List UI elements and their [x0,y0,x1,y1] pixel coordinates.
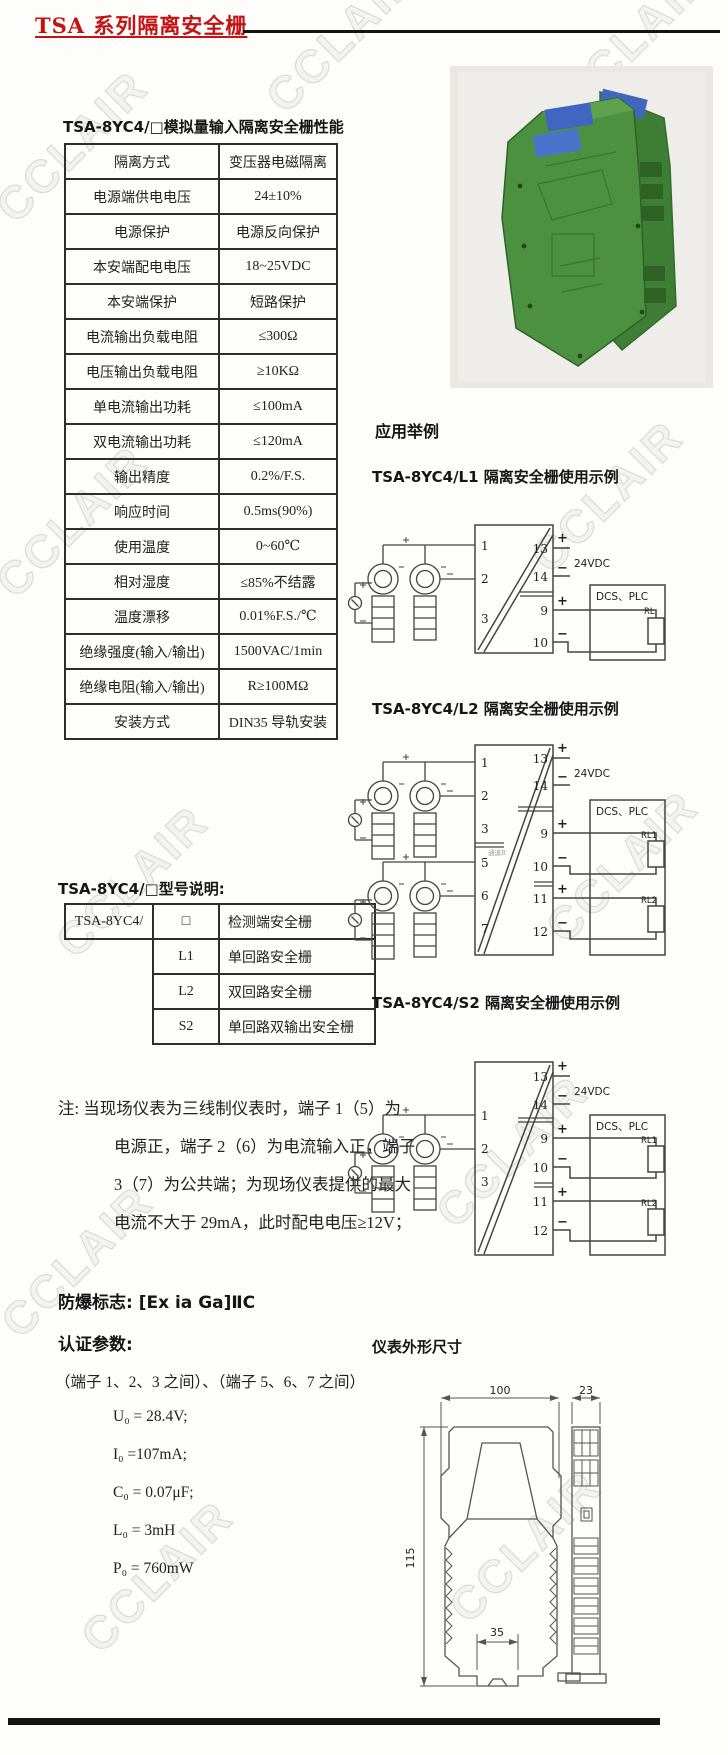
plus-sign: + [557,882,568,897]
terminal-number: 14 [533,779,549,793]
perf-value: ≥10KΩ [219,354,337,389]
terminal-number: 6 [481,889,489,903]
product-photo [450,66,713,388]
dim-width-label: 100 [490,1384,511,1397]
terminal-number: 12 [533,925,548,939]
cert-param: I₀ =107mA; [113,1440,194,1478]
side-view-base [566,1674,606,1683]
load-resistor [648,1209,664,1235]
terminal-number: 13 [533,1070,548,1084]
application-heading: 应用举例 [375,418,439,442]
s2-title: TSA-8YC4/S2 隔离安全栅使用示例 [372,992,620,1013]
load-label: RL [644,607,655,617]
note-line: 3（7）为公共端；为现场仪表提供的最大 [58,1166,370,1204]
terminal-number: 10 [533,860,548,874]
terminal-number: 13 [533,542,548,556]
perf-value: 18~25VDC [219,249,337,284]
minus-sign: − [557,1215,568,1230]
cert-param: C₀ = 0.07μF; [113,1478,194,1516]
title-rule [243,30,720,33]
plus-sign: + [557,1185,568,1200]
minus-sign: − [557,851,568,866]
note-line: 注: 当现场仪表为三线制仪表时，端子 1（5）为 [58,1090,370,1128]
perf-label: 电源保护 [65,214,219,249]
model-prefix-empty [65,1009,153,1044]
table-row: 电流输出负载电阻≤300Ω [65,319,337,354]
cert-param: P₀ = 760mW [113,1554,194,1592]
terminal-number: 11 [533,892,548,906]
front-view-outline [441,1427,561,1686]
supply-label: 24VDC [574,1086,610,1098]
minus-sign: − [557,770,568,785]
page: { "page": { "title": "TSA 系列隔离安全栅", "wat… [0,0,728,1755]
right-serration [550,1548,556,1644]
table-row: 双电流输出功耗≤120mA [65,424,337,459]
dimensions-heading: 仪表外形尺寸 [372,1336,462,1357]
note-line: 电流不大于 29mA，此时配电电压≥12V； [58,1204,370,1242]
table-row: 电源保护电源反向保护 [65,214,337,249]
perf-label: 响应时间 [65,494,219,529]
perf-label: 本安端配电电压 [65,249,219,284]
perf-value: ≤85%不结露 [219,564,337,599]
perf-label: 电流输出负载电阻 [65,319,219,354]
cert-terminals-line: （端子 1、2、3 之间）、（端子 5、6、7 之间） [55,1370,365,1392]
minus-sign: − [557,916,568,931]
terminal-number: 3 [481,1175,489,1189]
table-row: 本安端保护短路保护 [65,284,337,319]
note-block: 注: 当现场仪表为三线制仪表时，端子 1（5）为电源正，端子 2（6）为电流输入… [58,1090,370,1242]
terminal-number: 12 [533,1224,548,1238]
model-prefix-empty [65,939,153,974]
model-desc: 双回路安全栅 [219,974,375,1009]
s2-diagram: 1 2 3 13 14 9 10 11 12 + − + − + − 24VDC… [338,1030,720,1265]
perf-value: 24±10% [219,179,337,214]
side-view-terminals [574,1430,598,1654]
l2-title: TSA-8YC4/L2 隔离安全栅使用示例 [372,698,619,719]
table-row: L1单回路安全栅 [65,939,375,974]
perf-label: 绝缘电阻(输入/输出) [65,669,219,704]
terminal-number: 3 [481,822,489,836]
ex-mark: 防爆标志: [Ex ia Ga]ⅡC [58,1288,255,1313]
load-resistor [648,906,664,932]
dimension-drawing: 100 23 115 35 [350,1368,720,1698]
model-code: S2 [153,1009,219,1044]
perf-value: 0~60℃ [219,529,337,564]
terminal-number: 5 [481,856,489,870]
cert-param: U₀ = 28.4V; [113,1402,194,1440]
plus-sign: + [557,594,568,609]
terminal-number: 11 [533,1195,548,1209]
perf-label: 温度漂移 [65,599,219,634]
cert-param-block: U₀ = 28.4V;I₀ =107mA;C₀ = 0.07μF;L₀ = 3m… [113,1402,194,1592]
table-row: TSA-8YC4/□检测端安全栅 [65,904,375,939]
table-row: 绝缘强度(输入/输出)1500VAC/1min [65,634,337,669]
table-row: 本安端配电电压18~25VDC [65,249,337,284]
perf-heading: TSA-8YC4/□模拟量输入隔离安全栅性能 [63,116,344,137]
dim-foot-label: 35 [490,1626,504,1639]
supply-label: 24VDC [574,768,610,780]
terminal-number: 14 [533,570,549,584]
load-label: RL1 [641,831,657,841]
product-photo-illustration [450,66,713,388]
minus-sign: − [557,627,568,642]
terminal-number: 2 [481,572,489,586]
perf-label: 输出精度 [65,459,219,494]
terminal-number: 10 [533,636,548,650]
l1-diagram: 1 2 3 13 14 9 10 + − + − 24VDC DCS、PLC R… [338,500,720,668]
load-label: RL2 [641,1199,657,1209]
minus-sign: − [557,1089,568,1104]
model-code: □ [153,904,219,939]
perf-value: 电源反向保护 [219,214,337,249]
terminal-number: 1 [481,1109,489,1123]
perf-label: 电源端供电电压 [65,179,219,214]
perf-label: 绝缘强度(输入/输出) [65,634,219,669]
perf-label: 电压输出负载电阻 [65,354,219,389]
table-row: 安装方式DIN35 导轨安装 [65,704,337,739]
model-prefix: TSA-8YC4/ [65,904,153,939]
model-code: L1 [153,939,219,974]
table-row: 相对湿度≤85%不结露 [65,564,337,599]
table-row: 输出精度0.2%/F.S. [65,459,337,494]
minus-sign: − [557,1152,568,1167]
model-heading: TSA-8YC4/□型号说明: [58,878,225,899]
dcs-label: DCS、PLC [596,1121,648,1133]
side-view-outline [572,1427,600,1674]
supply-label: 24VDC [574,558,610,570]
terminal-number: 10 [533,1161,548,1175]
perf-label: 双电流输出功耗 [65,424,219,459]
perf-value: 短路保护 [219,284,337,319]
table-row: 响应时间0.5ms(90%) [65,494,337,529]
terminal-number: 1 [481,756,489,770]
watermark: CCLAIR [255,0,429,123]
perf-label: 本安端保护 [65,284,219,319]
footer-rule [8,1718,660,1725]
perf-value: ≤100mA [219,389,337,424]
table-row: L2双回路安全栅 [65,974,375,1009]
cert-params-heading: 认证参数: [58,1330,133,1355]
perf-value: 0.2%/F.S. [219,459,337,494]
channel-label: 通道B [488,848,506,857]
dcs-label: DCS、PLC [596,591,648,603]
model-prefix-empty [65,974,153,1009]
model-code: L2 [153,974,219,1009]
table-row: 绝缘电阻(输入/输出)R≥100MΩ [65,669,337,704]
perf-value: 变压器电磁隔离 [219,144,337,179]
perf-value: ≤300Ω [219,319,337,354]
model-table-body: TSA-8YC4/□检测端安全栅L1单回路安全栅L2双回路安全栅S2单回路双输出… [65,904,375,1044]
table-row: 隔离方式变压器电磁隔离 [65,144,337,179]
table-row: 电压输出负载电阻≥10KΩ [65,354,337,389]
load-label: RL2 [641,896,657,906]
table-row: S2单回路双输出安全栅 [65,1009,375,1044]
load-resistor [648,1146,664,1172]
plus-sign: + [557,1059,568,1074]
perf-table-body: 隔离方式变压器电磁隔离电源端供电电压24±10%电源保护电源反向保护本安端配电电… [65,144,337,739]
load-resistor [648,841,664,867]
table-row: 使用温度0~60℃ [65,529,337,564]
cert-param: L₀ = 3mH [113,1516,194,1554]
l1-title: TSA-8YC4/L1 隔离安全栅使用示例 [372,466,619,487]
load-resistor [648,618,664,644]
table-row: 温度漂移0.01%F.S./℃ [65,599,337,634]
perf-label: 使用温度 [65,529,219,564]
perf-value: 0.5ms(90%) [219,494,337,529]
l2-diagram: 1 2 3 5 6 7 通道B 13 14 9 10 11 12 + − + −… [338,738,720,963]
model-code-table: TSA-8YC4/□检测端安全栅L1单回路安全栅L2双回路安全栅S2单回路双输出… [64,903,376,1045]
load-label: RL1 [641,1136,657,1146]
left-serration [446,1548,452,1644]
perf-value: R≥100MΩ [219,669,337,704]
terminal-number: 3 [481,612,489,626]
din-clip-notch [488,1679,507,1686]
perf-label: 相对湿度 [65,564,219,599]
front-face-trapezoid [449,1443,553,1538]
perf-label: 隔离方式 [65,144,219,179]
page-title: TSA 系列隔离安全栅 [35,10,247,40]
terminal-number: 1 [481,539,489,553]
table-row: 电源端供电电压24±10% [65,179,337,214]
terminal-number: 2 [481,789,489,803]
table-row: 单电流输出功耗≤100mA [65,389,337,424]
output-wires [553,610,656,652]
dcs-label: DCS、PLC [596,806,648,818]
performance-table: 隔离方式变压器电磁隔离电源端供电电压24±10%电源保护电源反向保护本安端配电电… [64,143,338,740]
terminal-number: 13 [533,752,548,766]
perf-value: 0.01%F.S./℃ [219,599,337,634]
terminal-number: 14 [533,1098,549,1112]
terminal-number: 7 [481,922,489,936]
dim-height-label: 115 [404,1548,417,1569]
plus-sign: + [557,741,568,756]
terminal-number: 9 [540,827,548,841]
terminal-number: 2 [481,1142,489,1156]
terminal-number: 9 [540,604,548,618]
perf-label: 单电流输出功耗 [65,389,219,424]
plus-sign: + [557,531,568,546]
perf-value: ≤120mA [219,424,337,459]
perf-label: 安装方式 [65,704,219,739]
plus-sign: + [557,817,568,832]
minus-sign: − [557,561,568,576]
perf-value: DIN35 导轨安装 [219,704,337,739]
terminal-number: 9 [540,1132,548,1146]
note-line: 电源正，端子 2（6）为电流输入正，端子 [58,1128,370,1166]
perf-value: 1500VAC/1min [219,634,337,669]
plus-sign: + [557,1122,568,1137]
dim-depth-label: 23 [579,1384,593,1397]
